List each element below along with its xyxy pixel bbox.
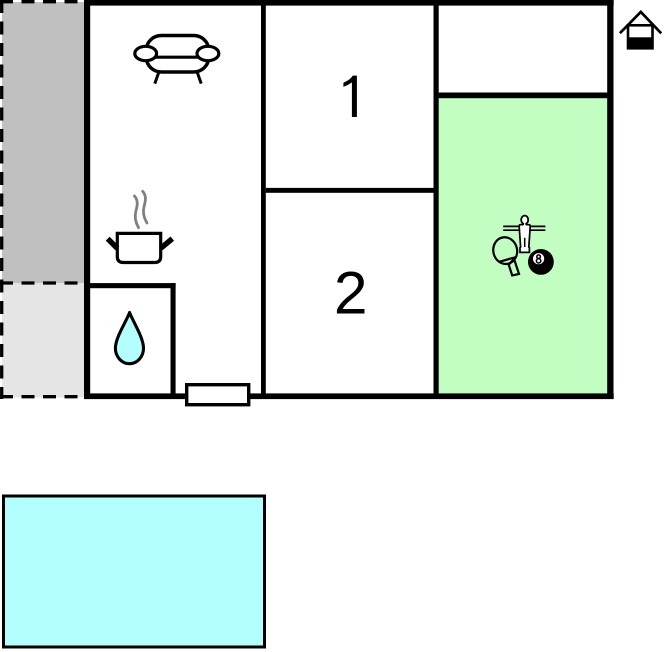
- svg-text:2: 2: [334, 259, 368, 327]
